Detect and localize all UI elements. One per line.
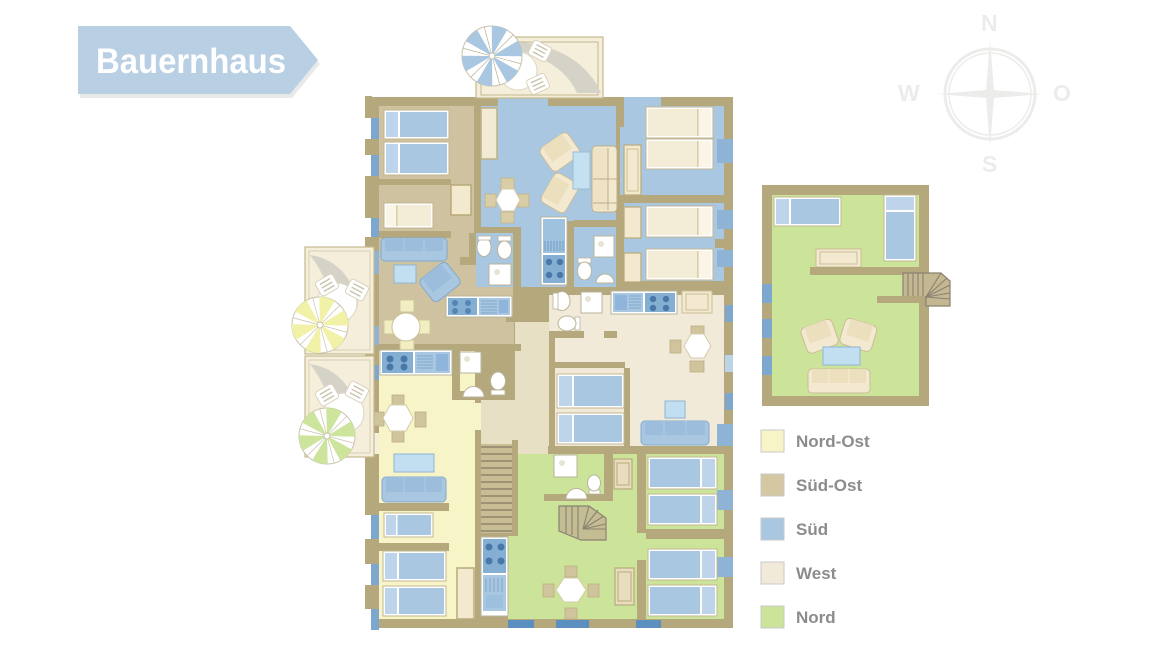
svg-text:Nord-Ost: Nord-Ost xyxy=(796,432,870,451)
svg-text:N: N xyxy=(981,10,998,36)
svg-text:Süd: Süd xyxy=(796,520,828,539)
svg-text:O: O xyxy=(1053,80,1071,106)
svg-text:W: W xyxy=(898,80,920,106)
svg-text:S: S xyxy=(982,151,997,177)
svg-text:Süd-Ost: Süd-Ost xyxy=(796,476,862,495)
svg-text:Bauernhaus: Bauernhaus xyxy=(96,42,286,81)
svg-text:Nord: Nord xyxy=(796,608,836,627)
svg-text:West: West xyxy=(796,564,837,583)
